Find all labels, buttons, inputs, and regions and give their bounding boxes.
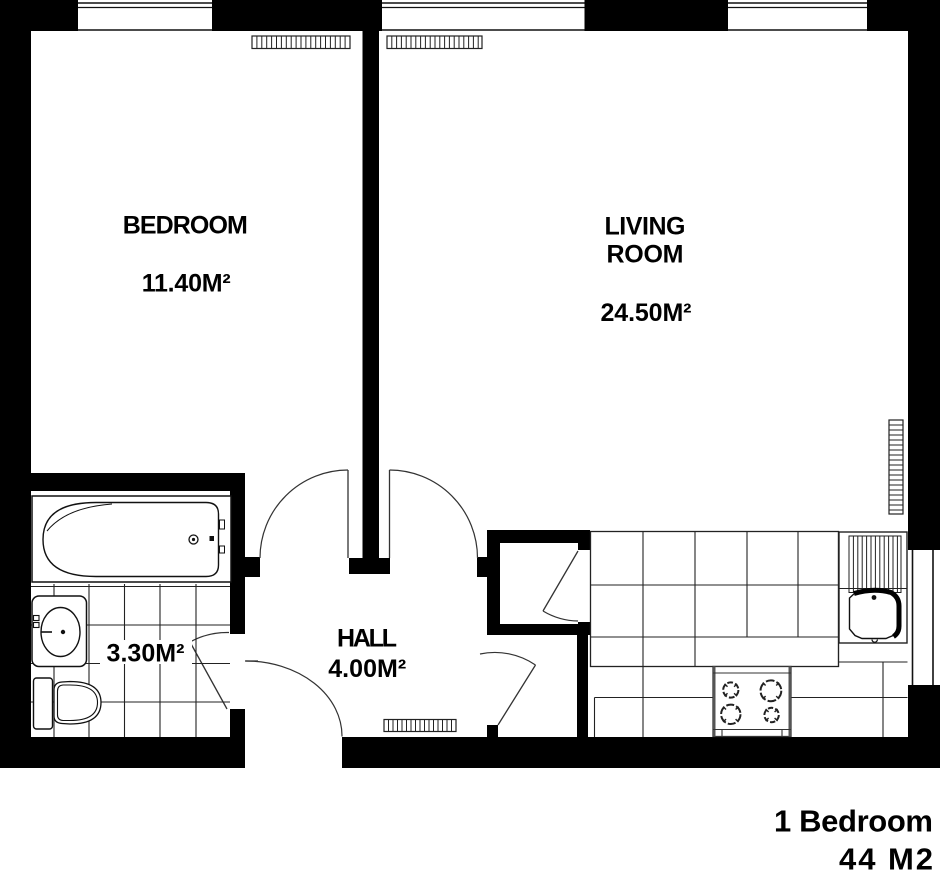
svg-text:HALL: HALL <box>337 625 397 653</box>
svg-text:4.00M²: 4.00M² <box>328 655 406 683</box>
svg-text:ROOM: ROOM <box>607 241 684 269</box>
svg-text:LIVING: LIVING <box>605 213 686 241</box>
svg-text:44 M2: 44 M2 <box>839 842 933 871</box>
svg-text:3.30M²: 3.30M² <box>107 640 185 668</box>
svg-text:1 Bedroom: 1 Bedroom <box>774 804 933 839</box>
svg-text:BEDROOM: BEDROOM <box>123 212 248 240</box>
svg-text:11.40M²: 11.40M² <box>142 270 231 298</box>
svg-text:24.50M²: 24.50M² <box>601 299 692 327</box>
